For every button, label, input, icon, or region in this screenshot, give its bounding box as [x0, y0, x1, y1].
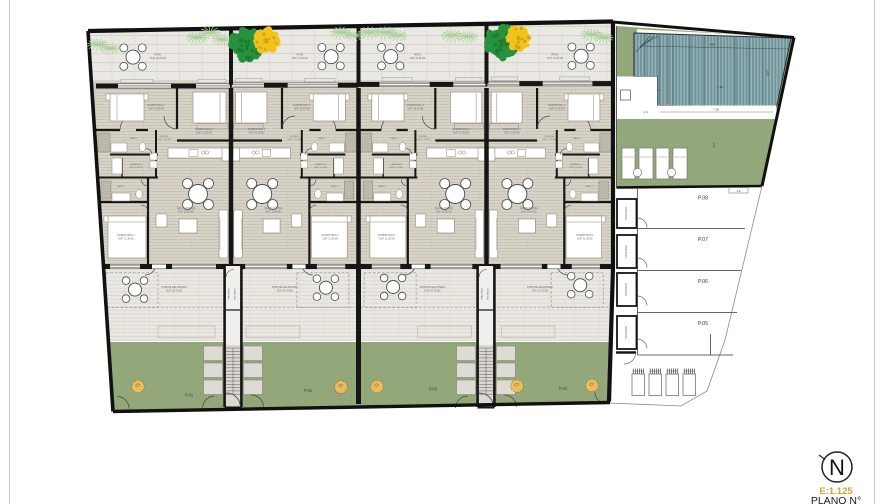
svg-text:SUP. 1.70 M2: SUP. 1.70 M2: [129, 167, 143, 169]
svg-text:P.05: P.05: [698, 321, 708, 327]
svg-text:P.06: P.06: [698, 279, 708, 285]
svg-text:SUP. 10.25 M2: SUP. 10.25 M2: [249, 131, 266, 134]
svg-text:4.60: 4.60: [709, 43, 715, 47]
svg-text:DISTRIB.: DISTRIB.: [159, 136, 169, 138]
svg-text:P.04: P.04: [559, 386, 568, 391]
svg-text:BAÑO 2: BAÑO 2: [573, 137, 582, 140]
svg-text:BAÑO 2: BAÑO 2: [130, 137, 139, 140]
svg-text:SUP. 11.30 M2: SUP. 11.30 M2: [379, 237, 395, 240]
svg-text:SUP. 11.30 M2: SUP. 11.30 M2: [118, 237, 134, 240]
svg-text:SUP. 1.70 M2: SUP. 1.70 M2: [314, 167, 328, 169]
svg-text:7.30: 7.30: [717, 85, 723, 89]
svg-text:DISTRIB.: DISTRIB.: [418, 136, 428, 138]
svg-text:SUP. 10.25 M2: SUP. 10.25 M2: [294, 107, 311, 110]
svg-text:SUP. 1.70 M2: SUP. 1.70 M2: [390, 167, 404, 169]
svg-text:VESTIBULO: VESTIBULO: [488, 287, 490, 300]
svg-text:LAVADERO: LAVADERO: [130, 163, 142, 166]
svg-text:BAÑO 2: BAÑO 2: [319, 137, 328, 140]
svg-text:SUP. 10.25 M2: SUP. 10.25 M2: [549, 107, 566, 110]
svg-text:SUP. 24.20 M2: SUP. 24.20 M2: [150, 57, 167, 60]
svg-text:TRASTERO: TRASTERO: [625, 245, 628, 258]
svg-text:VESTIBULO: VESTIBULO: [235, 287, 237, 300]
svg-text:PLANO N°: PLANO N°: [811, 495, 861, 504]
svg-text:TRASTERO: TRASTERO: [625, 207, 628, 220]
svg-text:SUP. 30.75 M2: SUP. 30.75 M2: [277, 289, 294, 292]
svg-text:SUP. 7.70 M2: SUP. 7.70 M2: [543, 139, 557, 141]
svg-text:P.01: P.01: [185, 393, 194, 398]
svg-text:TRASTERO: TRASTERO: [625, 326, 628, 339]
svg-text:DISTRIB.: DISTRIB.: [290, 136, 300, 138]
svg-text:P.02: P.02: [304, 388, 313, 393]
svg-text:SUP. 7.70 M2: SUP. 7.70 M2: [288, 139, 302, 141]
svg-text:SUP. 11.30 M2: SUP. 11.30 M2: [322, 237, 338, 240]
svg-text:TRASTERO: TRASTERO: [625, 283, 628, 296]
svg-text:BAÑO 1: BAÑO 1: [331, 185, 340, 188]
svg-text:SUP. 24.20 M2: SUP. 24.20 M2: [547, 57, 564, 60]
svg-text:TRASTERO: TRASTERO: [228, 288, 231, 300]
svg-text:SUP. 30.75 M2: SUP. 30.75 M2: [532, 289, 549, 292]
svg-text:P.03: P.03: [429, 387, 438, 392]
svg-text:BAÑO 1: BAÑO 1: [378, 185, 387, 188]
svg-text:SUP. 30.75 M2: SUP. 30.75 M2: [166, 289, 183, 292]
svg-text:1.2: 1.2: [736, 189, 741, 193]
svg-text:SUP. 10.25 M2: SUP. 10.25 M2: [196, 131, 213, 134]
svg-text:TRASTERO: TRASTERO: [481, 288, 484, 300]
svg-text:SUP. 10.25 M2: SUP. 10.25 M2: [407, 107, 424, 110]
svg-text:SUP. 10.25 M2: SUP. 10.25 M2: [504, 131, 521, 134]
svg-text:SUP. 19.90 M2: SUP. 19.90 M2: [521, 210, 538, 213]
svg-text:3.50: 3.50: [712, 142, 716, 148]
svg-text:7.30: 7.30: [713, 108, 719, 112]
svg-text:P.08: P.08: [698, 196, 708, 202]
svg-text:P.07: P.07: [698, 237, 708, 243]
svg-text:SUP. 24.20 M2: SUP. 24.20 M2: [292, 57, 309, 60]
svg-text:SUP. 10.25 M2: SUP. 10.25 M2: [453, 131, 470, 134]
svg-text:SUP. 7.70 M2: SUP. 7.70 M2: [157, 139, 171, 141]
svg-text:SUP. 11.30 M2: SUP. 11.30 M2: [577, 237, 593, 240]
svg-text:2.1: 2.1: [644, 110, 649, 114]
svg-text:SUP. 10.25 M2: SUP. 10.25 M2: [148, 107, 165, 110]
svg-text:SUP. 19.90 M2: SUP. 19.90 M2: [178, 210, 195, 213]
svg-text:LAVADERO: LAVADERO: [570, 163, 582, 166]
svg-text:LAVADERO: LAVADERO: [391, 163, 403, 166]
svg-text:SUP. 19.90 M2: SUP. 19.90 M2: [436, 210, 453, 213]
svg-text:SUP. 19.90 M2: SUP. 19.90 M2: [266, 210, 283, 213]
svg-text:N: N: [829, 455, 845, 480]
svg-text:SUP. 7.70 M2: SUP. 7.70 M2: [416, 139, 430, 141]
svg-text:BAÑO 2: BAÑO 2: [390, 137, 399, 140]
svg-text:BAÑO 1: BAÑO 1: [117, 185, 126, 188]
svg-text:SUP. 30.75 M2: SUP. 30.75 M2: [425, 289, 442, 292]
svg-text:LAVADERO: LAVADERO: [315, 163, 327, 166]
svg-text:SUP. 24.20 M2: SUP. 24.20 M2: [409, 57, 426, 60]
svg-text:BAÑO 1: BAÑO 1: [586, 185, 595, 188]
svg-text:SUP. 1.70 M2: SUP. 1.70 M2: [569, 167, 583, 169]
svg-text:DISTRIB.: DISTRIB.: [545, 136, 555, 138]
